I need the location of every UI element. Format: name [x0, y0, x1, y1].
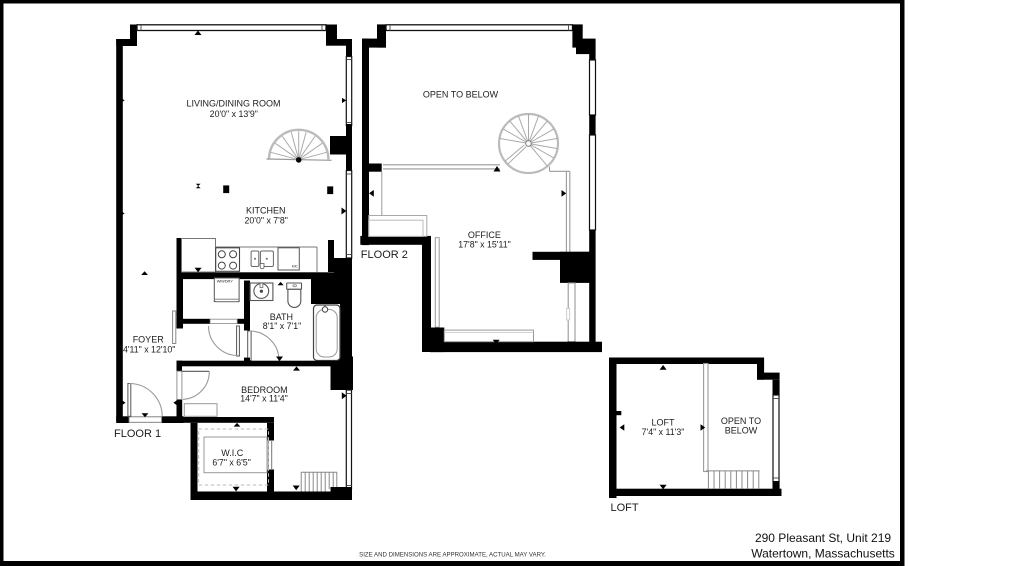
svg-text:SIZE AND DIMENSIONS ARE APPROX: SIZE AND DIMENSIONS ARE APPROXIMATE, ACT…	[359, 552, 546, 559]
svg-text:WM/DRY: WM/DRY	[217, 279, 234, 284]
svg-text:LOFT: LOFT	[651, 417, 675, 427]
svg-text:17'8" x 15'11": 17'8" x 15'11"	[458, 239, 511, 249]
svg-text:6'7" x 6'5": 6'7" x 6'5"	[212, 458, 250, 468]
svg-text:LOFT: LOFT	[611, 502, 639, 514]
svg-text:4'11" x 12'10": 4'11" x 12'10"	[123, 345, 176, 355]
svg-text:OPEN TO BELOW: OPEN TO BELOW	[423, 90, 499, 100]
svg-text:FOYER: FOYER	[133, 334, 165, 344]
svg-text:W.I.C: W.I.C	[221, 448, 243, 458]
svg-text:14'7" x 11'4": 14'7" x 11'4"	[240, 393, 288, 403]
svg-text:7'4" x 11'3": 7'4" x 11'3"	[642, 427, 685, 437]
svg-text:20'0" x 13'9": 20'0" x 13'9"	[210, 109, 258, 119]
svg-text:20'0" x 7'8": 20'0" x 7'8"	[245, 216, 288, 226]
svg-text:8'1" x 7'1": 8'1" x 7'1"	[263, 321, 301, 331]
svg-text:290 Pleasant St, Unit 219: 290 Pleasant St, Unit 219	[755, 531, 891, 545]
svg-text:FLOOR 1: FLOOR 1	[114, 428, 161, 440]
svg-text:LIVING/DINING ROOM: LIVING/DINING ROOM	[186, 98, 280, 108]
svg-text:Watertown, Massachusetts: Watertown, Massachusetts	[751, 546, 895, 560]
svg-text:FLOOR 2: FLOOR 2	[361, 249, 408, 261]
svg-text:MIC: MIC	[292, 265, 299, 269]
svg-text:KITCHEN: KITCHEN	[246, 206, 286, 216]
svg-text:BELOW: BELOW	[725, 425, 758, 435]
svg-text:OPEN TO: OPEN TO	[721, 416, 761, 426]
